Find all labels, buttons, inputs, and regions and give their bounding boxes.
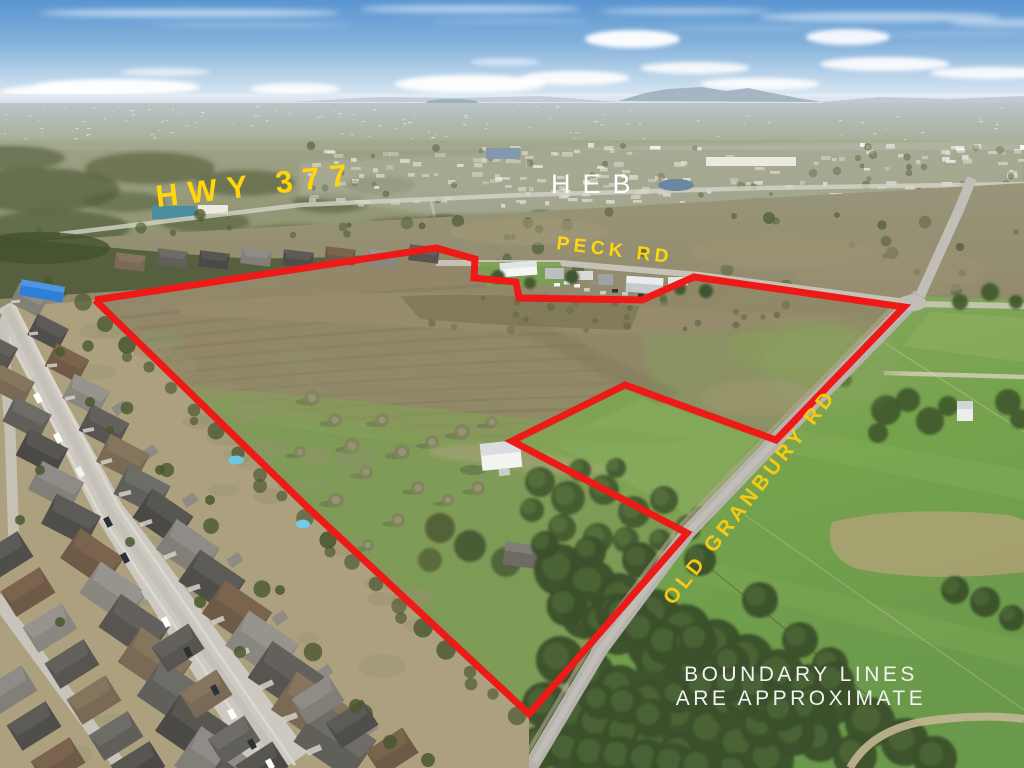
svg-text:HEB: HEB bbox=[551, 169, 643, 199]
svg-text:ARE APPROXIMATE: ARE APPROXIMATE bbox=[676, 687, 927, 710]
svg-text:BOUNDARY LINES: BOUNDARY LINES bbox=[684, 663, 918, 686]
